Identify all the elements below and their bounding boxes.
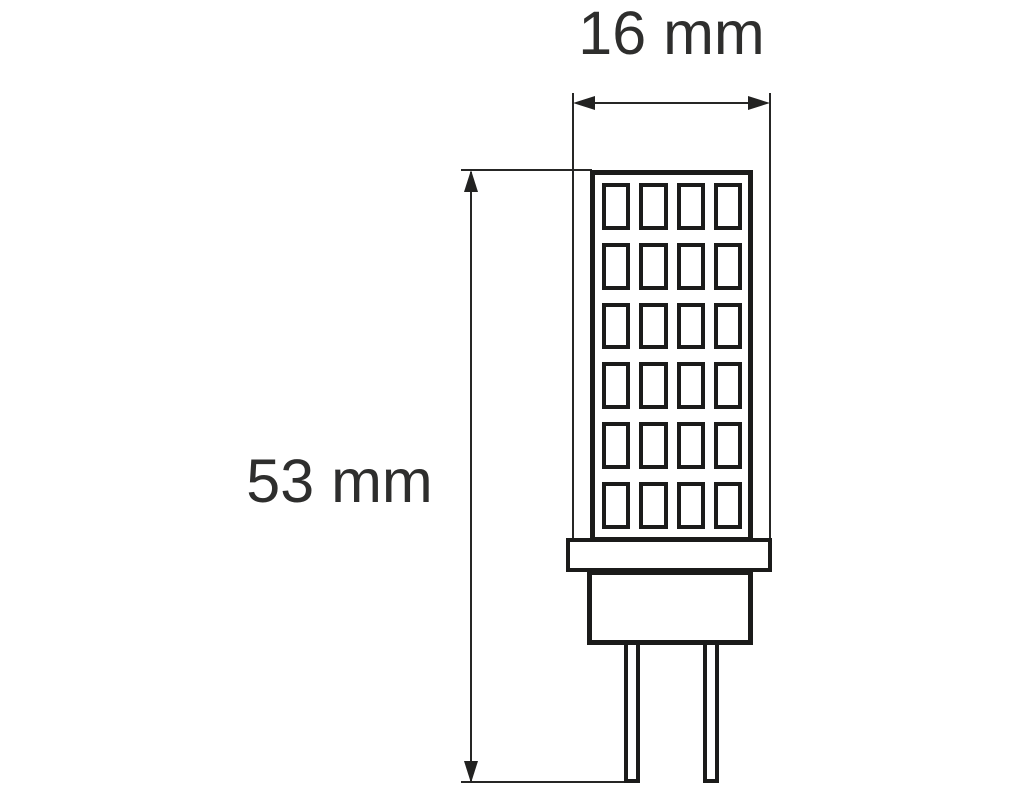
led-chip	[714, 362, 742, 409]
width-dimension-line	[576, 102, 766, 104]
bulb-body	[590, 170, 753, 542]
led-chip	[677, 422, 705, 469]
led-chip	[714, 303, 742, 350]
led-chip	[677, 482, 705, 529]
led-chip	[602, 303, 630, 350]
led-chip	[677, 303, 705, 350]
led-chip	[602, 362, 630, 409]
arrowhead-right-icon	[748, 96, 770, 110]
led-chip	[639, 362, 667, 409]
led-chip	[714, 482, 742, 529]
led-chip	[602, 422, 630, 469]
led-chip	[602, 482, 630, 529]
led-chip	[677, 183, 705, 230]
led-chip	[714, 422, 742, 469]
arrowhead-down-icon	[464, 761, 478, 783]
height-extension-line-bottom	[461, 781, 640, 783]
led-chip	[714, 183, 742, 230]
height-dimension-line	[470, 172, 472, 781]
arrowhead-left-icon	[573, 96, 595, 110]
led-chip	[677, 243, 705, 290]
led-chip	[639, 303, 667, 350]
led-chip	[639, 243, 667, 290]
led-chip	[602, 183, 630, 230]
led-chip	[639, 482, 667, 529]
led-chip	[639, 183, 667, 230]
height-dimension-label: 53 mm	[232, 451, 447, 512]
width-dimension-label: 16 mm	[564, 3, 779, 64]
bulb-pin-left	[624, 641, 640, 783]
width-extension-line-right	[769, 93, 771, 543]
height-extension-line-top	[461, 169, 592, 171]
bulb-base	[587, 570, 753, 645]
led-chip	[714, 243, 742, 290]
led-bulb-dimension-diagram: 16 mm 53 mm	[0, 0, 1024, 800]
bulb-pin-right	[703, 641, 719, 783]
led-chip	[639, 422, 667, 469]
arrowhead-up-icon	[464, 170, 478, 192]
bulb-collar	[566, 538, 772, 572]
width-extension-line-left	[572, 93, 574, 541]
led-chip	[677, 362, 705, 409]
led-chip	[602, 243, 630, 290]
